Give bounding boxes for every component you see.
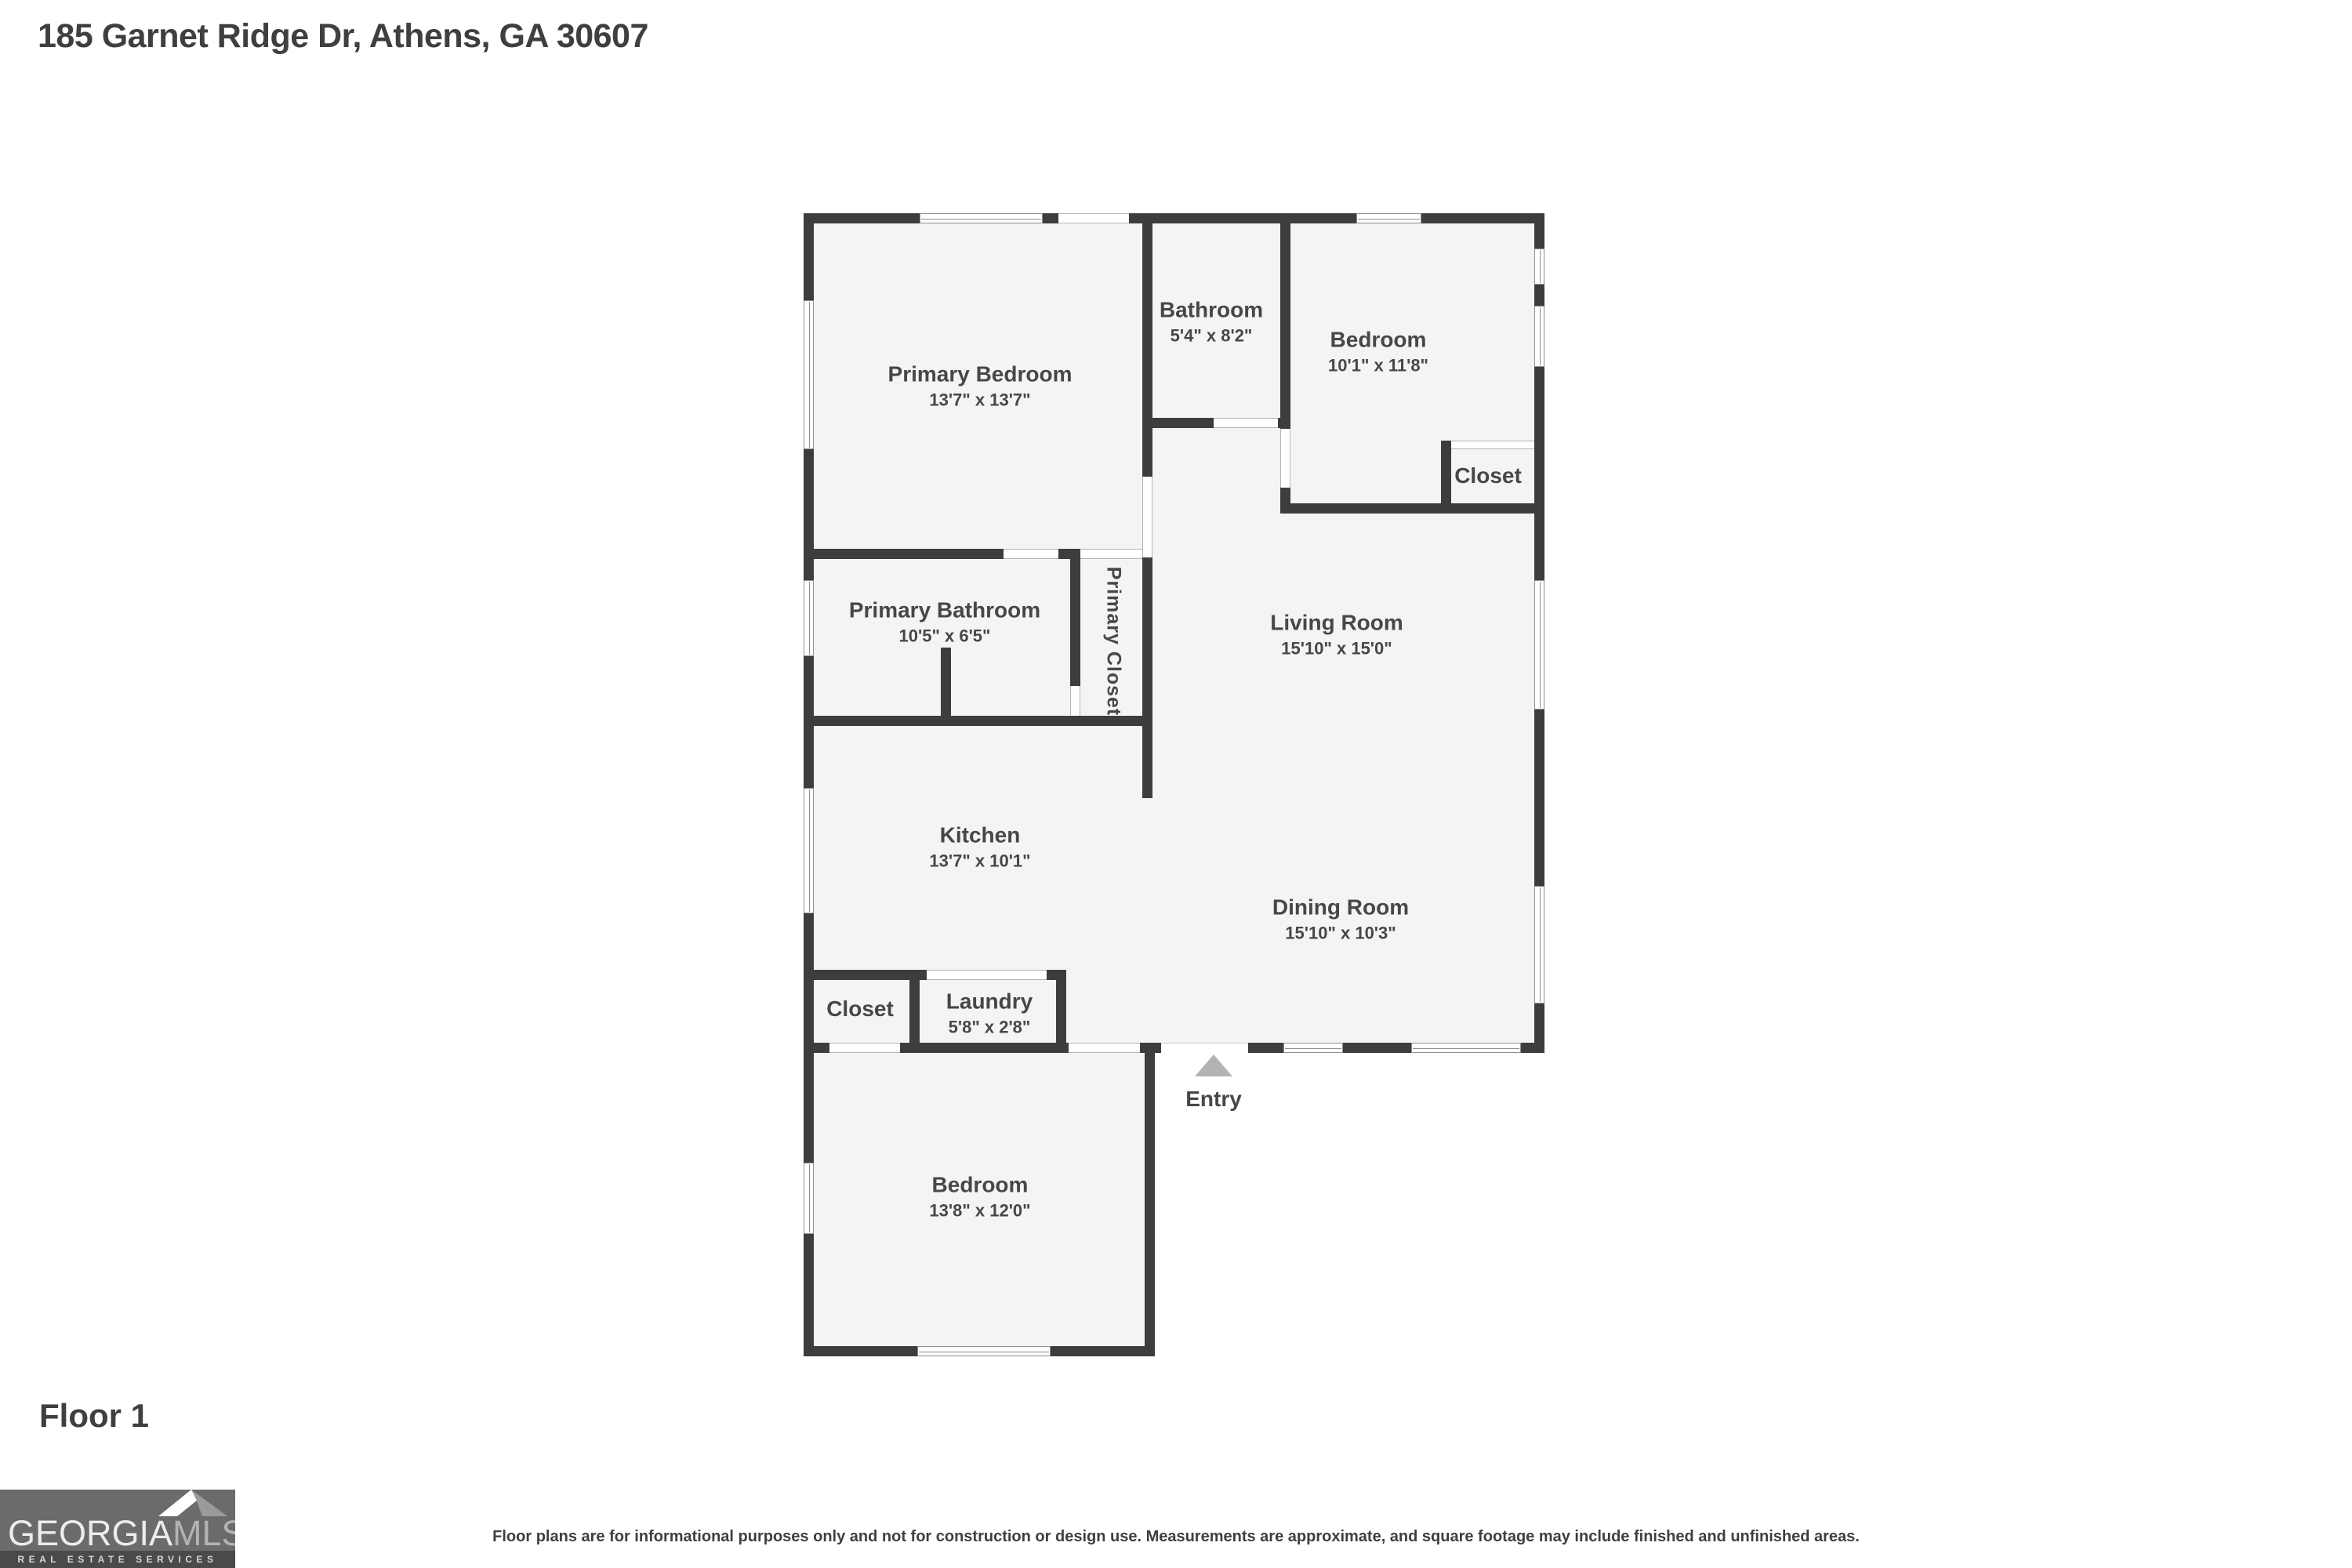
wall-segment [941, 648, 951, 716]
room-name: Dining Room [1272, 895, 1409, 920]
entry-arrow-icon [1195, 1054, 1232, 1076]
room-name: Living Room [1270, 610, 1403, 635]
room-name: Closet [826, 996, 894, 1022]
room-label-primary-bathroom: Primary Bathroom 10'5" x 6'5" [849, 597, 1040, 645]
room-label-dining-room: Dining Room 15'10" x 10'3" [1272, 895, 1409, 942]
room-dims: 13'7" x 13'7" [888, 390, 1073, 409]
door-opening [1080, 549, 1142, 559]
room-dims: 10'1" x 11'8" [1328, 355, 1428, 375]
room-name: Bedroom [1328, 327, 1428, 352]
room-label-bathroom: Bathroom 5'4" x 8'2" [1160, 297, 1263, 345]
wall-segment [1145, 1043, 1155, 1356]
room-dims: 10'5" x 6'5" [849, 626, 1040, 645]
room-name: Kitchen [929, 822, 1030, 848]
wall-segment [814, 716, 1152, 726]
door-opening [1004, 549, 1058, 559]
room-dims: 15'10" x 15'0" [1270, 638, 1403, 658]
door-opening [1142, 477, 1152, 557]
logo-tagline: REAL ESTATE SERVICES [0, 1551, 235, 1568]
window [1534, 886, 1544, 1004]
room-dims: 13'7" x 10'1" [929, 851, 1030, 870]
room-name: Bathroom [1160, 297, 1263, 322]
door-opening [927, 970, 1047, 980]
door-opening [1280, 429, 1290, 488]
floor-plan: Primary Bedroom 13'7" x 13'7" Bathroom 5… [0, 0, 2352, 1568]
door-opening [1069, 1043, 1140, 1053]
room-name: Primary Bedroom [888, 361, 1073, 387]
door-opening [1058, 213, 1129, 223]
window [1411, 1043, 1521, 1053]
room-label-bedroom-top: Bedroom 10'1" x 11'8" [1328, 327, 1428, 375]
door-opening [1070, 686, 1080, 716]
window [804, 580, 814, 656]
wall-segment [1056, 970, 1066, 1053]
room-dims: 5'8" x 2'8" [946, 1017, 1033, 1036]
room-name: Primary Bathroom [849, 597, 1040, 622]
wall-segment [1280, 503, 1535, 514]
window [804, 300, 814, 449]
room-label-living-room: Living Room 15'10" x 15'0" [1270, 610, 1403, 658]
room-dims: 13'8" x 12'0" [929, 1200, 1030, 1220]
room-label-closet-hall: Closet [826, 996, 894, 1022]
door-opening [1214, 418, 1278, 428]
room-label-closet-bedroom: Closet [1454, 463, 1522, 488]
wall-segment [909, 970, 920, 1053]
floor-plan-page: 185 Garnet Ridge Dr, Athens, GA 30607 Pr… [0, 0, 2352, 1568]
room-label-laundry: Laundry 5'8" x 2'8" [946, 989, 1033, 1036]
wall-segment [1441, 441, 1451, 514]
window [1283, 1043, 1343, 1053]
window [1534, 580, 1544, 710]
entry-label: Entry [1185, 1087, 1242, 1112]
room-label-bedroom-bottom: Bedroom 13'8" x 12'0" [929, 1172, 1030, 1220]
room-label-kitchen: Kitchen 13'7" x 10'1" [929, 822, 1030, 870]
window [804, 788, 814, 913]
window [1356, 213, 1421, 223]
room-name: Bedroom [929, 1172, 1030, 1197]
room-name: Closet [1454, 463, 1522, 488]
wall-segment [804, 213, 1544, 223]
room-label-primary-bedroom: Primary Bedroom 13'7" x 13'7" [888, 361, 1073, 409]
door-opening [829, 1043, 900, 1053]
room-dims: 5'4" x 8'2" [1160, 325, 1263, 345]
window [1534, 249, 1544, 285]
window [920, 213, 1043, 223]
room-dims: 15'10" x 10'3" [1272, 923, 1409, 942]
door-opening [1451, 441, 1534, 449]
room-name: Laundry [946, 989, 1033, 1014]
room-label-primary-closet: Primary Closet [1102, 567, 1125, 716]
entry-opening [1161, 1043, 1248, 1053]
window [804, 1163, 814, 1234]
window [1534, 306, 1544, 367]
floor-label: Floor 1 [39, 1397, 149, 1435]
window [917, 1346, 1051, 1356]
disclaimer-text: Floor plans are for informational purpos… [0, 1528, 2352, 1546]
